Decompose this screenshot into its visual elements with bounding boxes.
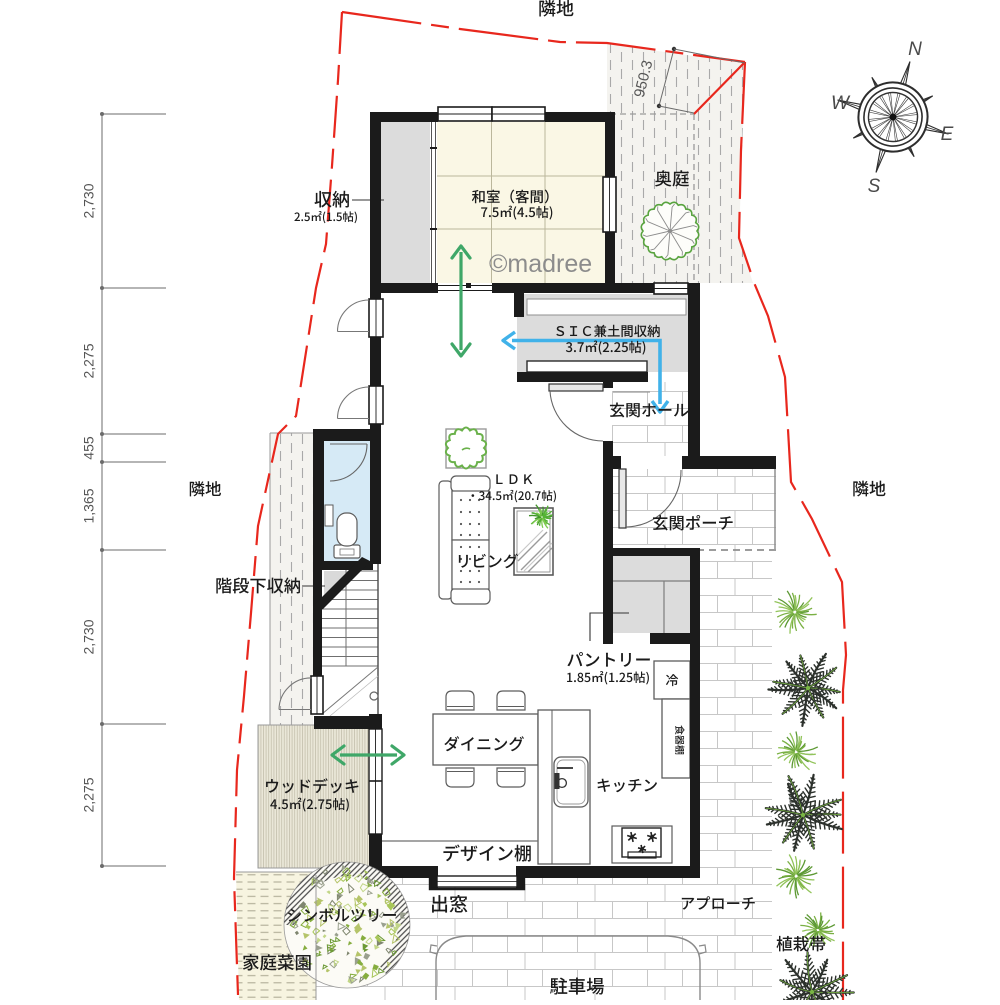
svg-text:2,275: 2,275 xyxy=(81,777,97,812)
svg-text:1,365: 1,365 xyxy=(81,488,97,523)
svg-text:©madree: ©madree xyxy=(489,250,592,278)
svg-text:455: 455 xyxy=(81,436,97,460)
svg-text:S: S xyxy=(868,176,881,197)
svg-text:E: E xyxy=(941,124,954,145)
svg-text:2,730: 2,730 xyxy=(81,619,97,654)
svg-text:2,275: 2,275 xyxy=(81,343,97,378)
svg-text:2,730: 2,730 xyxy=(81,183,97,218)
svg-text:W: W xyxy=(831,93,851,114)
svg-text:N: N xyxy=(908,39,922,60)
